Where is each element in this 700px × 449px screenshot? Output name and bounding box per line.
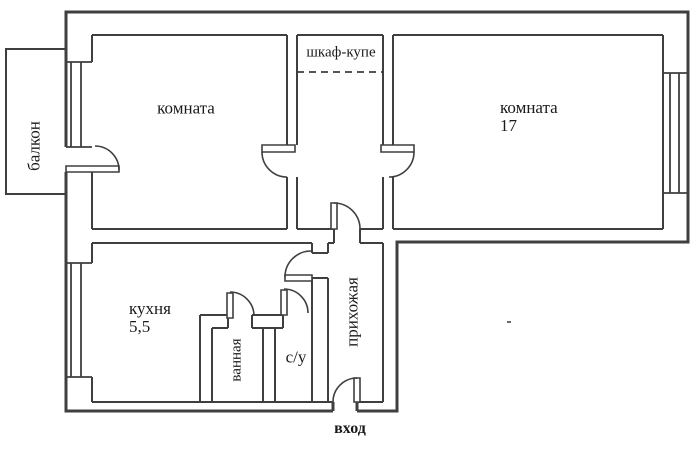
interior-walls bbox=[92, 35, 663, 402]
label-kitchen-area: 5,5 bbox=[129, 318, 171, 336]
label-room-right-name: комната bbox=[500, 99, 558, 117]
label-kitchen-name: кухня bbox=[129, 300, 171, 318]
image-speck bbox=[507, 321, 511, 323]
label-hallway: прихожая bbox=[344, 277, 361, 347]
floor-plan-svg bbox=[0, 0, 700, 449]
label-wardrobe: шкаф-купе bbox=[306, 46, 375, 61]
label-entrance: вход bbox=[334, 421, 366, 437]
label-balcony: балкон bbox=[26, 121, 43, 171]
label-kitchen: кухня 5,5 bbox=[129, 300, 171, 336]
label-bathroom: ванная bbox=[230, 338, 245, 381]
door-arcs bbox=[95, 146, 414, 402]
label-room-right-area: 17 bbox=[500, 117, 558, 135]
floor-plan: балкон комната шкаф-купе комната 17 кухн… bbox=[0, 0, 700, 449]
label-wc: с/у bbox=[286, 349, 307, 366]
outer-walls bbox=[66, 12, 688, 411]
label-room-left: комната bbox=[157, 100, 215, 117]
label-room-right: комната 17 bbox=[500, 99, 558, 135]
